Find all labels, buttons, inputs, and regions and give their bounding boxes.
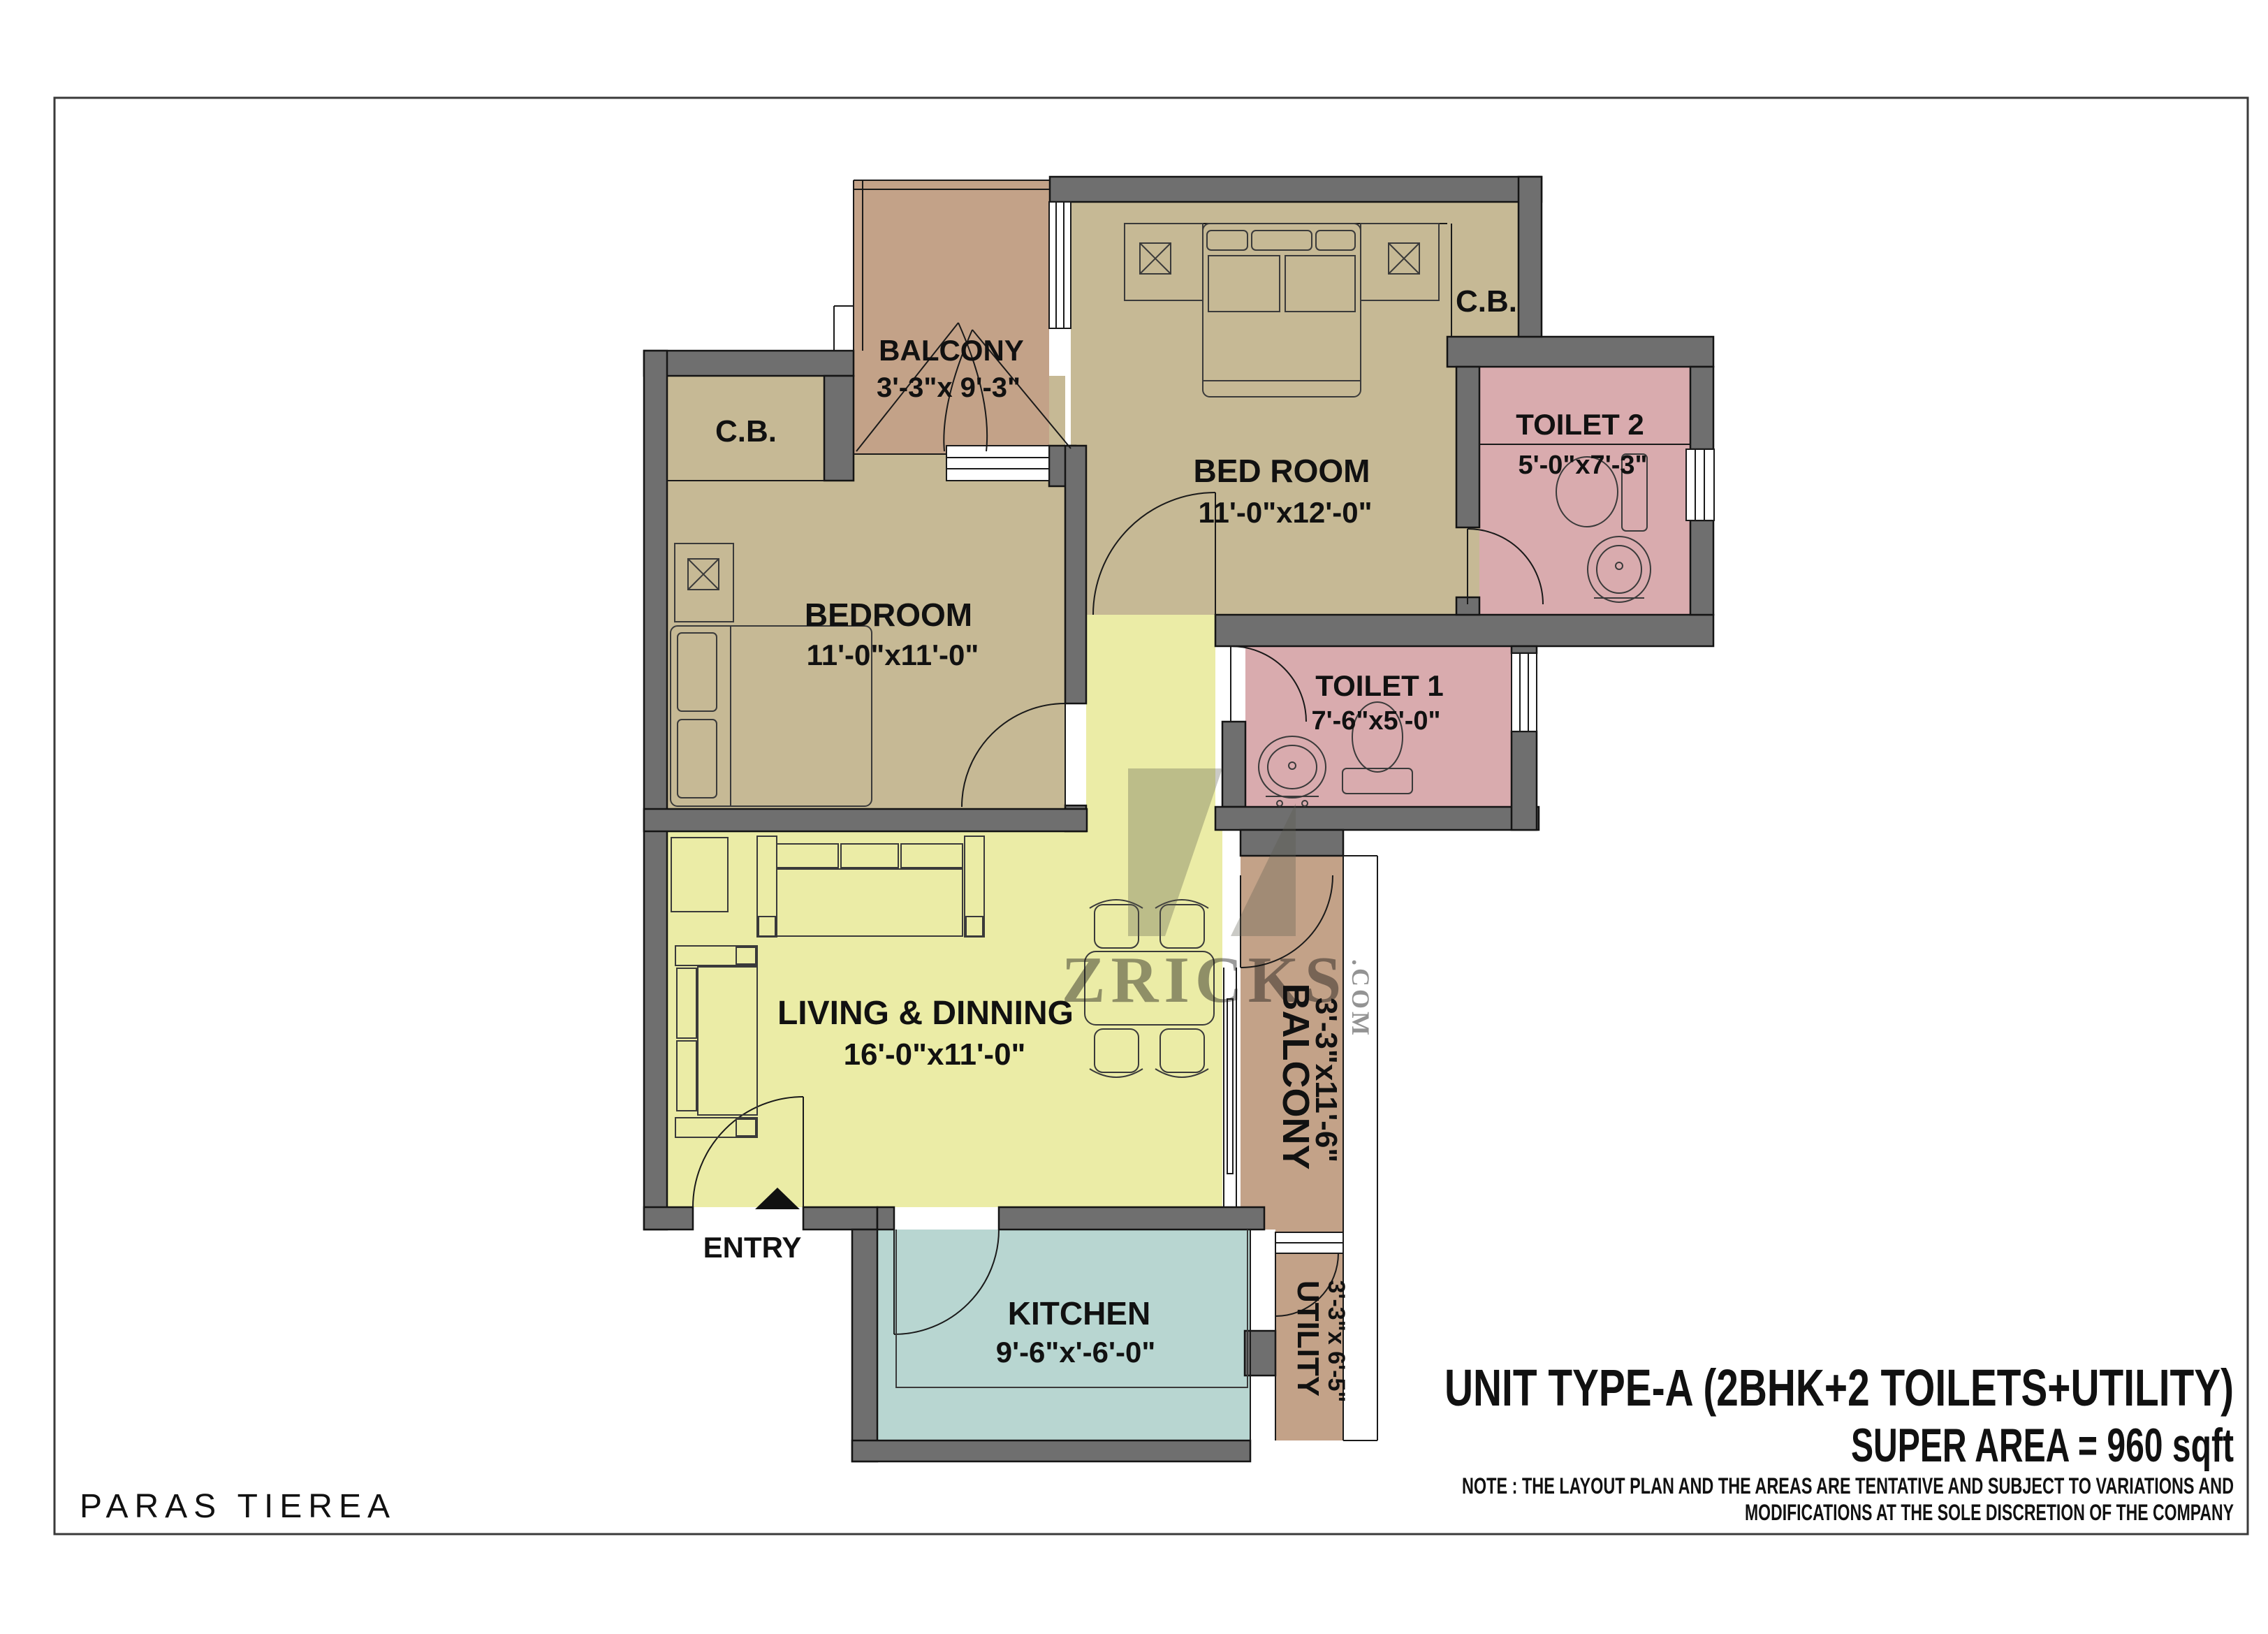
balcony-top-dims: 3'-3"x 9'-3" <box>877 372 1020 403</box>
kitchen-dims: 9'-6"x'-6'-0" <box>996 1336 1156 1369</box>
floor-plan-canvas: ZRICKS .COM BALCONY 3'-3"x 9'-3" BED ROO… <box>0 0 2268 1634</box>
window-frame <box>1512 653 1537 731</box>
wall-toilet2-right-upper <box>1690 367 1713 449</box>
window-toilet1 <box>1512 653 1537 731</box>
balcony-top-label: BALCONY <box>879 334 1024 367</box>
toilet-2-dims: 5'-0"x7'-3" <box>1518 451 1647 480</box>
wall-kitchen-bottom <box>852 1440 1250 1461</box>
balcony-right-dims: 3'-3"x11'-6" <box>1309 998 1343 1162</box>
note-line2: MODIFICATIONS AT THE SOLE DISCRETION OF … <box>1745 1500 2234 1525</box>
wall-toilet1-right-upper <box>1512 646 1537 653</box>
bed-room-label: BED ROOM <box>1194 453 1370 489</box>
toilet-2-floor <box>1479 367 1690 615</box>
window-balcony-bedroom <box>946 446 1049 481</box>
project-name: PARAS TIEREA <box>80 1488 396 1525</box>
note-line1: NOTE : THE LAYOUT PLAN AND THE AREAS ARE… <box>1462 1473 2234 1498</box>
wall-left-outer <box>644 351 667 1230</box>
living-dims: 16'-0"x11'-0" <box>844 1037 1026 1072</box>
bedroom-label: BEDROOM <box>805 597 972 633</box>
window-toilet2 <box>1686 449 1714 520</box>
toilet-2-label: TOILET 2 <box>1516 408 1644 441</box>
window-frame <box>1049 202 1071 328</box>
entry-label: ENTRY <box>703 1231 802 1264</box>
wall-kitchen-top-left <box>877 1207 894 1230</box>
wall-top <box>1050 177 1542 202</box>
utility-dims: 3'-3"x 6'-5" <box>1323 1280 1349 1402</box>
glazing-mullion <box>1227 999 1233 1174</box>
watermark-suffix: .COM <box>1347 959 1375 1038</box>
utility-label: UTILITY <box>1291 1281 1325 1396</box>
wall-mid-band <box>1215 615 1713 646</box>
wall-toilet1-bottom <box>1215 807 1539 830</box>
unit-title: UNIT TYPE-A (2BHK+2 TOILETS+UTILITY) <box>1444 1359 2234 1417</box>
wall-leftblock-top <box>644 351 854 376</box>
floor-plan-page: ZRICKS .COM BALCONY 3'-3"x 9'-3" BED ROO… <box>0 0 2268 1634</box>
toilet-1-dims: 7'-6"x5'-0" <box>1311 706 1440 736</box>
wall-entry-right <box>803 1207 877 1230</box>
wall-toilet2-top <box>1447 337 1713 367</box>
window-frame <box>1686 449 1714 520</box>
cb-right-label: C.B. <box>1456 284 1517 319</box>
wall-entry-left <box>644 1207 693 1230</box>
bed-room-dims: 11'-0"x12'-0" <box>1199 496 1373 529</box>
wall-utility-stub <box>1245 1331 1275 1376</box>
wall-kitchen-left <box>852 1230 877 1461</box>
window-utility-threshold <box>1275 1232 1343 1253</box>
window-balcony-divider <box>1049 202 1071 328</box>
living-label: LIVING & DINNING <box>777 995 1074 1032</box>
window-frame <box>946 446 1049 481</box>
wall-toilet2-right-lower <box>1690 520 1713 615</box>
toilet-1-label: TOILET 1 <box>1315 669 1444 702</box>
super-area: SUPER AREA = 960 sqft <box>1851 1419 2234 1472</box>
balcony-top-floor <box>854 180 1049 454</box>
wall-toilet1-left <box>1222 722 1245 807</box>
kitchen-floor <box>877 1230 1250 1440</box>
wall-toilet2-left-upper <box>1456 367 1479 527</box>
wall-living-top <box>644 809 1087 831</box>
title-block: UNIT TYPE-A (2BHK+2 TOILETS+UTILITY) SUP… <box>1444 1359 2234 1525</box>
kitchen-label: KITCHEN <box>1008 1295 1150 1332</box>
wall-kitchen-top-right <box>999 1207 1264 1230</box>
cb-left-label: C.B. <box>715 414 777 448</box>
wall-right-outer-upper <box>1519 177 1542 337</box>
wall-toilet1-right-lower <box>1512 731 1537 830</box>
wall-bedroomleft-right-upper <box>1065 446 1086 703</box>
wall-cb-stub <box>824 376 854 481</box>
bedroom-dims: 11'-0"x11'-0" <box>807 639 979 671</box>
